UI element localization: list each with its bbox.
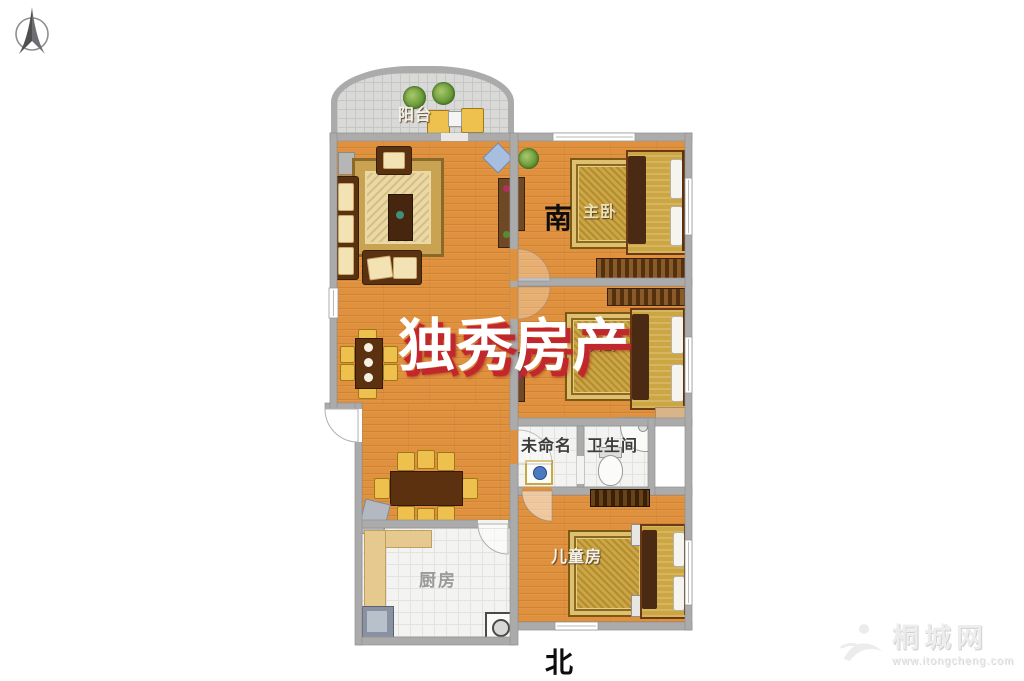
master-bedroom-label: 主卧 xyxy=(583,198,617,222)
kitchen-label: 厨房 xyxy=(419,566,457,591)
site-logo-icon xyxy=(840,619,886,665)
unnamed-room-label: 未命名 xyxy=(521,432,572,456)
balcony-label: 阳台 xyxy=(398,101,432,125)
floorplan-canvas: 阳台 主卧 次卧 未命名 卫生间 儿童房 厨房 南 北 独秀房产 桐城网 www… xyxy=(0,0,1024,681)
site-url: www.itongcheng.com xyxy=(892,655,1014,667)
south-label: 南 xyxy=(544,197,572,237)
site-watermark: 桐城网 www.itongcheng.com xyxy=(840,616,1014,667)
north-label: 北 xyxy=(545,641,573,681)
site-name: 桐城网 xyxy=(892,616,1014,655)
bath-mat xyxy=(590,489,650,507)
children-room-label: 儿童房 xyxy=(551,543,602,567)
site-text-block: 桐城网 www.itongcheng.com xyxy=(892,616,1014,667)
agency-watermark: 独秀房产 xyxy=(398,300,630,382)
bathroom-label: 卫生间 xyxy=(587,432,638,456)
